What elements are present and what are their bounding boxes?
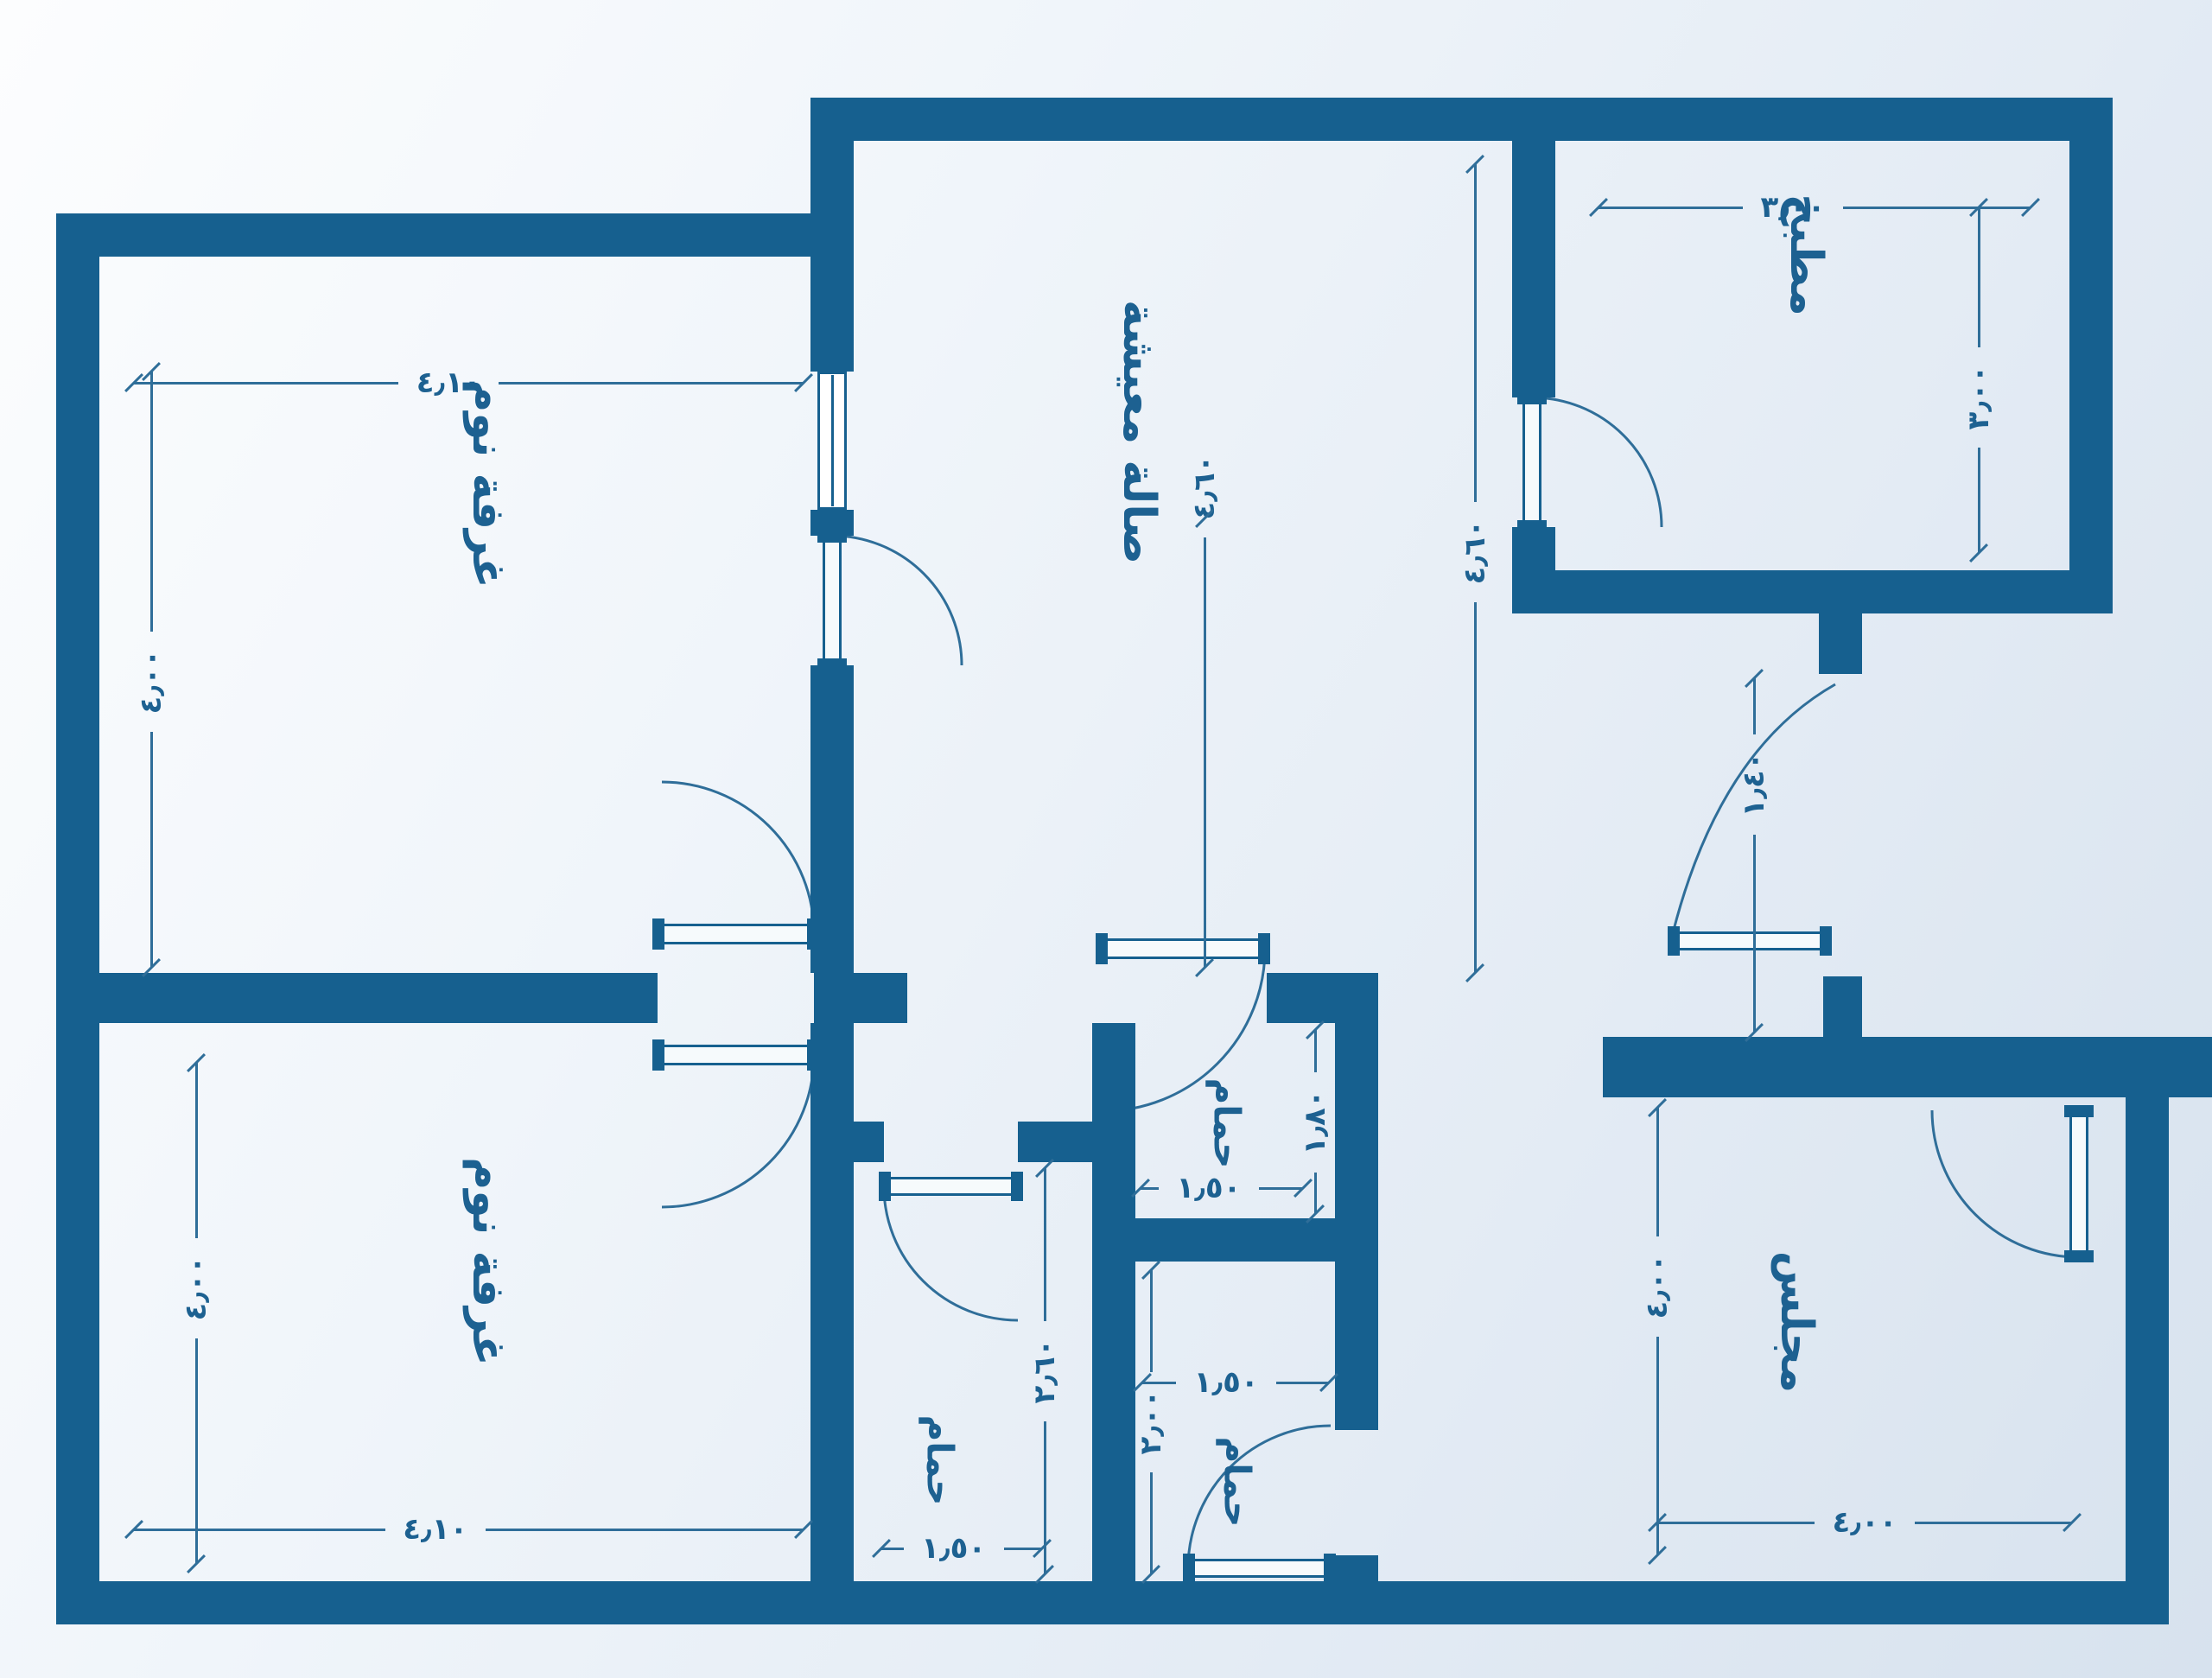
dimline-majlis-height-a	[1656, 1108, 1659, 1236]
floor-plan-canvas: غرفة نوم غرفة نوم صالة معيشة مطبخ مجلس ح…	[0, 0, 2212, 1678]
dimline-kitchen-width-a	[1599, 207, 1743, 209]
dimline-bathroom-1-width-b	[1259, 1187, 1303, 1190]
room-label-bedroom-1: غرفة نوم	[462, 379, 514, 588]
room-label-bedroom-2: غرفة نوم	[462, 1157, 514, 1366]
door-jamb-bedroom-1-living-door-b	[817, 658, 847, 671]
door-arc-bathroom-2-door	[884, 1186, 1018, 1320]
wall-bathroom-3-right-up	[1335, 1262, 1378, 1430]
wall-kitchen-left-upper	[1512, 141, 1555, 397]
dim-corridor-door: ١٫٤٠	[1737, 753, 1771, 817]
dimline-bedroom-1-width-a	[134, 382, 398, 385]
wall-kitchen-left-lower	[1512, 527, 1555, 570]
door-jamb-bedroom-1-hall-door-b	[807, 918, 819, 950]
dim-living-depth-a: ٤٫٦٠	[1187, 454, 1222, 519]
dimline-bathroom-3-width-a	[1142, 1382, 1176, 1384]
wall-bathroom-1-topwall	[1267, 973, 1378, 1023]
door-leaf-bedroom-1-living-door	[823, 536, 842, 665]
door-jamb-bathroom-3-door-b	[1324, 1554, 1336, 1583]
dim-majlis-width: ٤٫٠٠	[1833, 1505, 1897, 1540]
dim-bathroom-1-height: ١٫٨٠	[1298, 1090, 1332, 1154]
door-jamb-bathroom-2-door-a	[879, 1172, 891, 1201]
dimline-kitchen-height-b	[1978, 448, 1980, 553]
wall-living-top	[810, 98, 2113, 141]
room-label-majlis: مجلس	[1770, 1251, 1822, 1393]
dim-bedroom-1-height: ٤٫٠٠	[134, 649, 168, 714]
window-line-bedroom-1-window	[831, 375, 834, 506]
dimline-bathroom-3-width-b	[1276, 1382, 1329, 1384]
door-leaf-bedroom-2-hall-door	[658, 1045, 814, 1065]
wall-bath-column	[1092, 1023, 1135, 1581]
door-jamb-bedroom-1-hall-door-a	[652, 918, 664, 950]
dim-bedroom-1-width: ٤٫١٠	[416, 365, 481, 400]
dim-bathroom-2-height: ٢٫٦٠	[1027, 1339, 1062, 1404]
dimline-bathroom-2-width-b	[1004, 1548, 1042, 1550]
dim-kitchen-width: ٣٫٠٠	[1761, 190, 1826, 225]
wall-bathroom-3-right-stub	[1335, 1555, 1378, 1581]
dim-bathroom-3-height: ٢٫٠٠	[1134, 1390, 1168, 1455]
dimline-bedroom-2-width-a	[134, 1529, 385, 1531]
door-jamb-bedroom-2-hall-door-b	[807, 1039, 819, 1071]
dimline-living-depth-b-a	[1474, 164, 1477, 502]
door-leaf-bathroom-1-door	[1101, 938, 1265, 959]
dimline-kitchen-width-b	[1843, 207, 2031, 209]
door-jamb-kitchen-door-a	[1517, 392, 1547, 404]
dimline-bedroom-1-width-b	[499, 382, 804, 385]
wall-majlis-top	[1603, 1037, 2212, 1097]
dim-bathroom-3-width: ١٫٥٠	[1194, 1365, 1259, 1400]
door-jamb-bedroom-2-hall-door-a	[652, 1039, 664, 1071]
room-label-living-hall: صالة معيشة	[1113, 300, 1165, 564]
dimline-corridor-door-a	[1753, 678, 1756, 734]
door-leaf-bedroom-1-hall-door	[658, 924, 814, 944]
room-label-bathroom-1: حمام	[1206, 1078, 1249, 1169]
dimline-bathroom-2-width-a	[881, 1548, 904, 1550]
wall-bedroom-1-right-a	[810, 257, 854, 372]
wall-bedroom-2-right	[810, 1023, 854, 1581]
door-jamb-bedroom-1-living-door-a	[817, 531, 847, 543]
door-jamb-bathroom-3-door-a	[1183, 1554, 1195, 1583]
wall-bathroom-2-top-right	[1018, 1122, 1092, 1162]
door-leaf-bathroom-2-door	[884, 1177, 1018, 1196]
door-jamb-bathroom-2-door-b	[1011, 1172, 1023, 1201]
wall-stub-above-majlis	[1823, 976, 1862, 1037]
room-label-bathroom-2: حمام	[919, 1415, 962, 1506]
dim-majlis-height: ٤٫٠٠	[1640, 1255, 1675, 1319]
dimline-kitchen-height-a	[1978, 207, 1980, 347]
dimline-living-depth-b-b	[1474, 602, 1477, 973]
door-jamb-entrance-door-a	[2064, 1105, 2094, 1117]
wall-kitchen-bottom	[1512, 570, 2113, 613]
door-arc-bedroom-2-hall-door	[662, 1055, 814, 1207]
dimline-bedroom-1-height-b	[150, 732, 153, 968]
dimline-bathroom-2-height-a	[1044, 1168, 1046, 1321]
door-arc-bedroom-1-hall-door	[662, 782, 814, 934]
dimline-bedroom-2-width-b	[486, 1529, 804, 1531]
door-arc-bedroom-1-living-door	[832, 536, 962, 665]
dim-bedroom-2-height: ٤٫٠٠	[179, 1256, 213, 1321]
dim-bathroom-1-width: ١٫٥٠	[1176, 1171, 1241, 1205]
wall-top-jog	[810, 98, 854, 257]
door-jamb-corridor-door-a	[1668, 926, 1680, 956]
wall-divider-left	[56, 973, 658, 1023]
wall-outer-bottom	[56, 1581, 2169, 1624]
dimline-bathroom-1-height-a	[1314, 1030, 1317, 1072]
door-jamb-bathroom-1-door-a	[1096, 933, 1108, 964]
door-jamb-entrance-door-b	[2064, 1250, 2094, 1262]
dimline-living-depth-a-b	[1204, 537, 1206, 968]
wall-outer-left	[56, 213, 99, 1624]
door-jamb-bathroom-1-door-b	[1258, 933, 1270, 964]
wall-bathroom-3-top	[1092, 1218, 1378, 1262]
dimline-bathroom-3-height-b	[1150, 1472, 1153, 1574]
dimline-majlis-width-b	[1915, 1522, 2072, 1524]
wall-bathroom-2-top-left	[854, 1122, 884, 1162]
wall-divider-jamb	[814, 973, 907, 1023]
dimline-bedroom-1-height-a	[150, 372, 153, 632]
dim-living-depth-b: ٤٫٦٠	[1458, 520, 1492, 585]
dimline-corridor-door-b	[1753, 835, 1756, 1033]
door-arc-entrance-door	[1932, 1110, 2079, 1257]
wall-bedroom-1-top	[56, 213, 854, 257]
door-arc-bathroom-3-door	[1188, 1426, 1331, 1568]
dimline-bathroom-1-height-b	[1314, 1173, 1317, 1215]
door-leaf-bathroom-3-door	[1188, 1559, 1331, 1578]
dimline-bathroom-3-height-a	[1150, 1270, 1153, 1372]
dim-kitchen-height: ٣٫٠٠	[1961, 365, 1996, 430]
wall-stub-below-kitchen	[1819, 613, 1862, 674]
door-arc-kitchen-door	[1532, 397, 1662, 527]
dimline-bathroom-2-height-b	[1044, 1421, 1046, 1574]
dimline-majlis-width-a	[1657, 1522, 1815, 1524]
room-label-bathroom-3: حمام	[1217, 1437, 1259, 1528]
wall-majlis-right	[2126, 1097, 2169, 1581]
dimline-bedroom-2-height-a	[195, 1063, 198, 1238]
door-leaf-corridor-door	[1673, 931, 1827, 950]
wall-kitchen-right-outer	[2069, 98, 2113, 613]
door-leaf-kitchen-door	[1522, 397, 1541, 527]
door-jamb-corridor-door-b	[1820, 926, 1832, 956]
dim-bathroom-2-width: ١٫٥٠	[921, 1531, 986, 1566]
dim-bedroom-2-width: ٤٫١٠	[403, 1512, 467, 1547]
door-leaf-entrance-door	[2069, 1110, 2088, 1257]
door-jamb-kitchen-door-b	[1517, 520, 1547, 532]
